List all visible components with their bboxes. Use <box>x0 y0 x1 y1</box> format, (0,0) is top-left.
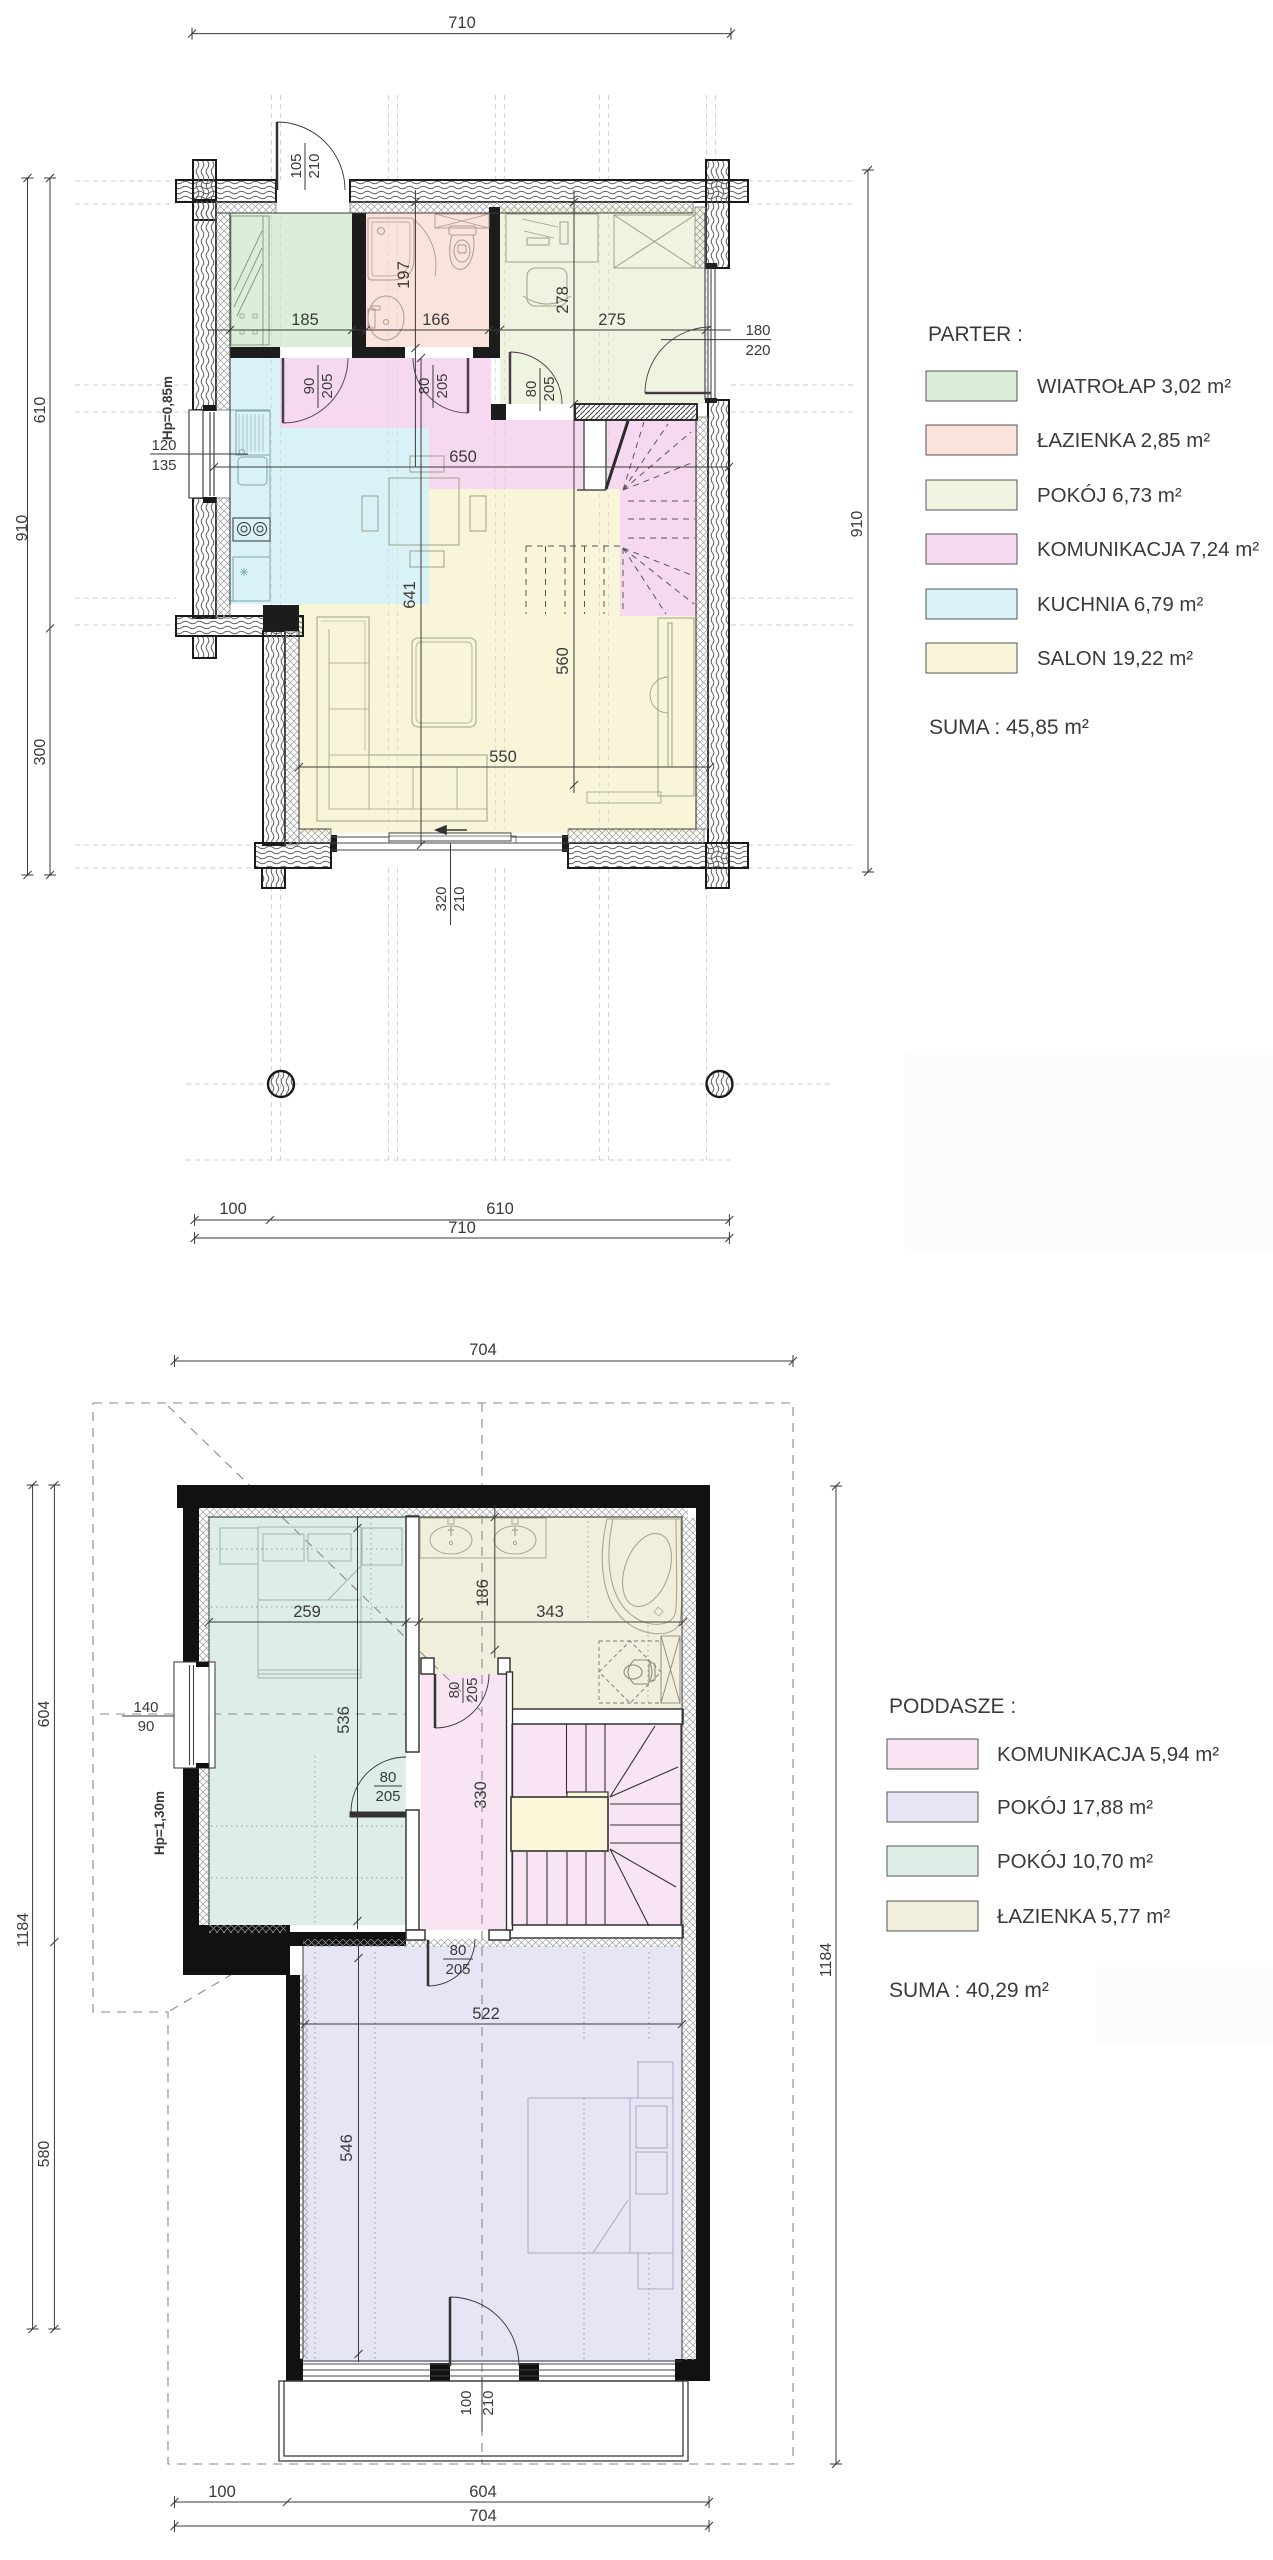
svg-text:105: 105 <box>288 153 305 178</box>
svg-text:205: 205 <box>319 373 336 398</box>
svg-text:80: 80 <box>450 1942 467 1959</box>
svg-text:Hp=1,30m: Hp=1,30m <box>152 1791 167 1855</box>
svg-text:604: 604 <box>36 1701 53 1728</box>
svg-text:210: 210 <box>480 2390 497 2415</box>
svg-text:POKÓJ 6,73 m²: POKÓJ 6,73 m² <box>1037 484 1182 507</box>
svg-text:140: 140 <box>133 1699 158 1716</box>
svg-text:135: 135 <box>151 457 176 474</box>
svg-text:710: 710 <box>448 1219 476 1237</box>
svg-text:SALON 19,22 m²: SALON 19,22 m² <box>1037 647 1193 670</box>
svg-text:KOMUNIKACJA 7,24 m²: KOMUNIKACJA 7,24 m² <box>1037 538 1259 561</box>
svg-text:910: 910 <box>849 511 866 538</box>
svg-text:1184: 1184 <box>818 1943 835 1978</box>
svg-text:KUCHNIA 6,79 m²: KUCHNIA 6,79 m² <box>1037 593 1203 616</box>
svg-text:210: 210 <box>451 886 468 911</box>
svg-text:343: 343 <box>536 1603 564 1621</box>
svg-text:WIATROŁAP 3,02 m²: WIATROŁAP 3,02 m² <box>1037 375 1231 398</box>
svg-text:704: 704 <box>469 1341 497 1359</box>
svg-text:259: 259 <box>293 1603 321 1621</box>
svg-text:205: 205 <box>464 1677 481 1702</box>
svg-text:PARTER :: PARTER : <box>928 323 1023 346</box>
svg-text:197: 197 <box>395 261 413 289</box>
svg-text:522: 522 <box>472 2005 500 2023</box>
svg-text:604: 604 <box>469 2483 497 2501</box>
svg-text:185: 185 <box>291 311 319 329</box>
svg-text:SUMA : 45,85 m²: SUMA : 45,85 m² <box>929 716 1089 739</box>
svg-text:210: 210 <box>306 153 323 178</box>
svg-text:90: 90 <box>138 1718 155 1735</box>
svg-text:100: 100 <box>208 2483 236 2501</box>
svg-text:710: 710 <box>448 14 476 32</box>
svg-text:704: 704 <box>469 2507 497 2525</box>
svg-text:ŁAZIENKA 2,85 m²: ŁAZIENKA 2,85 m² <box>1037 429 1210 452</box>
svg-text:100: 100 <box>219 1200 247 1218</box>
svg-text:Hp=0,85m: Hp=0,85m <box>160 376 175 440</box>
svg-text:POKÓJ 17,88 m²: POKÓJ 17,88 m² <box>997 1796 1153 1819</box>
svg-text:300: 300 <box>32 739 49 766</box>
svg-text:80: 80 <box>523 381 540 398</box>
svg-text:641: 641 <box>401 581 419 609</box>
svg-text:180: 180 <box>745 322 770 339</box>
svg-text:580: 580 <box>36 2141 53 2168</box>
svg-text:220: 220 <box>745 342 770 359</box>
svg-text:166: 166 <box>422 311 450 329</box>
svg-text:90: 90 <box>301 378 318 395</box>
svg-text:POKÓJ 10,70 m²: POKÓJ 10,70 m² <box>997 1850 1153 1873</box>
svg-text:650: 650 <box>449 448 477 466</box>
svg-text:205: 205 <box>541 376 558 401</box>
svg-text:546: 546 <box>338 2134 356 2162</box>
svg-text:80: 80 <box>380 1769 397 1786</box>
svg-text:80: 80 <box>446 1682 463 1699</box>
svg-text:550: 550 <box>489 748 517 766</box>
svg-text:PODDASZE :: PODDASZE : <box>889 1695 1016 1718</box>
svg-text:205: 205 <box>434 373 451 398</box>
svg-text:80: 80 <box>416 378 433 395</box>
svg-text:SUMA : 40,29 m²: SUMA : 40,29 m² <box>889 1979 1049 2002</box>
svg-text:330: 330 <box>472 1781 490 1809</box>
svg-text:610: 610 <box>486 1200 514 1218</box>
svg-text:186: 186 <box>474 1579 492 1607</box>
svg-text:560: 560 <box>554 647 572 675</box>
svg-text:ŁAZIENKA 5,77 m²: ŁAZIENKA 5,77 m² <box>997 1905 1170 1928</box>
svg-text:910: 910 <box>14 515 31 542</box>
svg-text:275: 275 <box>598 311 626 329</box>
svg-text:100: 100 <box>458 2390 475 2415</box>
svg-text:278: 278 <box>554 286 572 314</box>
svg-text:320: 320 <box>433 886 450 911</box>
svg-text:1184: 1184 <box>15 1913 32 1948</box>
svg-text:205: 205 <box>375 1788 400 1805</box>
svg-text:205: 205 <box>445 1961 470 1978</box>
svg-text:536: 536 <box>335 1706 353 1734</box>
svg-text:610: 610 <box>32 397 49 424</box>
svg-text:KOMUNIKACJA 5,94 m²: KOMUNIKACJA 5,94 m² <box>997 1743 1219 1766</box>
